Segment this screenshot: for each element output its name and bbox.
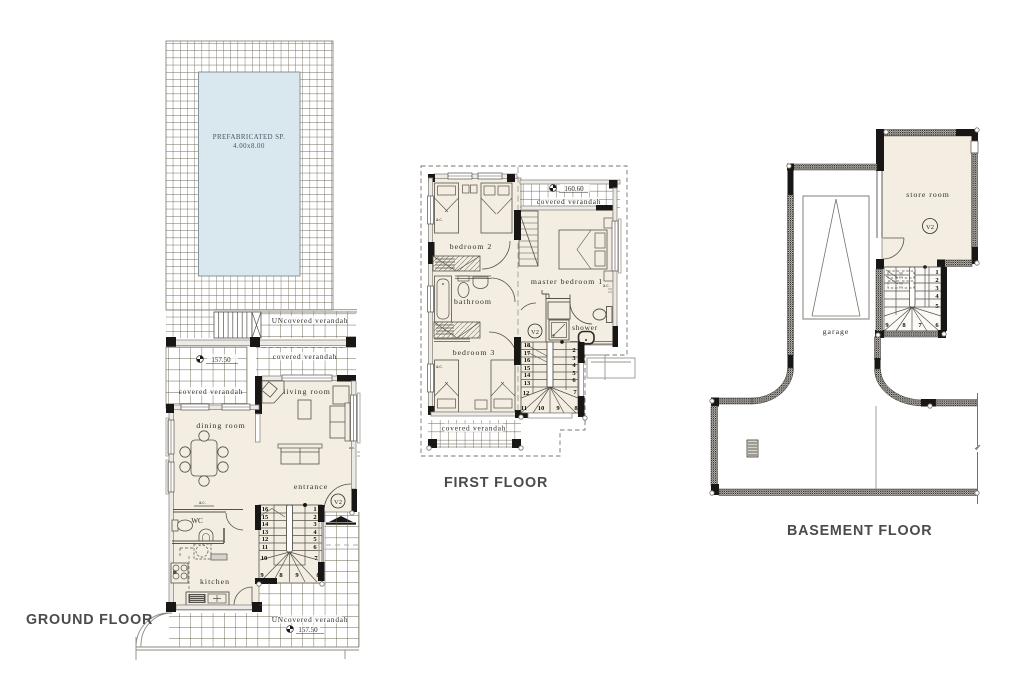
svg-text:WC: WC: [191, 517, 203, 525]
svg-text:15: 15: [262, 514, 269, 521]
svg-text:11: 11: [262, 544, 268, 551]
svg-text:GROUND FLOOR: GROUND FLOOR: [26, 612, 153, 628]
svg-text:master bedroom 1: master bedroom 1: [531, 277, 603, 286]
svg-text:157.50: 157.50: [298, 626, 318, 634]
svg-text:covered verandah: covered verandah: [179, 387, 243, 396]
svg-text:covered verandah: covered verandah: [537, 197, 601, 206]
svg-text:V2: V2: [334, 499, 342, 506]
svg-text:covered verandah: covered verandah: [273, 352, 337, 361]
svg-text:16: 16: [524, 357, 531, 364]
svg-text:17: 17: [524, 350, 531, 357]
svg-text:kitchen: kitchen: [200, 577, 230, 586]
svg-text:covered verandah: covered verandah: [442, 424, 506, 433]
svg-text:11: 11: [521, 405, 527, 412]
svg-text:FIRST FLOOR: FIRST FLOOR: [444, 475, 548, 491]
svg-text:PREFABRICATED SP.: PREFABRICATED SP.: [213, 134, 286, 141]
svg-text:12: 12: [262, 536, 269, 543]
svg-text:a.c.: a.c.: [603, 284, 610, 289]
svg-text:V2: V2: [926, 224, 934, 231]
svg-text:18: 18: [524, 342, 531, 349]
svg-text:16: 16: [262, 506, 269, 513]
svg-text:a.c.: a.c.: [436, 365, 443, 370]
svg-text:garage: garage: [823, 327, 850, 336]
svg-text:a.c.: a.c.: [436, 218, 443, 223]
svg-text:14: 14: [524, 372, 531, 379]
svg-text:10: 10: [538, 405, 545, 412]
svg-text:1: 1: [935, 269, 938, 276]
svg-text:store room: store room: [906, 190, 950, 199]
svg-text:UNcovered verandah: UNcovered verandah: [272, 615, 349, 624]
svg-text:bedroom 2: bedroom 2: [450, 242, 493, 251]
svg-text:160.60: 160.60: [564, 185, 584, 193]
svg-text:BASEMENT FLOOR: BASEMENT FLOOR: [787, 523, 932, 539]
svg-text:UNcovered verandah: UNcovered verandah: [272, 316, 349, 325]
svg-text:V2: V2: [531, 329, 539, 336]
svg-text:157.50: 157.50: [211, 356, 231, 364]
svg-text:entrance: entrance: [294, 482, 328, 491]
svg-text:dining room: dining room: [196, 421, 245, 430]
svg-text:bedroom 3: bedroom 3: [453, 348, 496, 357]
svg-text:12: 12: [523, 390, 530, 397]
svg-text:a.c.: a.c.: [199, 501, 206, 506]
svg-text:13: 13: [524, 380, 531, 387]
svg-text:1: 1: [313, 506, 316, 513]
svg-text:13: 13: [262, 529, 269, 536]
svg-text:10: 10: [261, 555, 268, 562]
svg-text:living room: living room: [283, 387, 331, 396]
svg-text:a.c.: a.c.: [349, 445, 355, 450]
svg-text:4.00x8.00: 4.00x8.00: [233, 143, 265, 150]
svg-text:bathroom: bathroom: [454, 297, 492, 306]
svg-text:14: 14: [262, 521, 269, 528]
svg-text:shower: shower: [572, 323, 598, 332]
svg-text:15: 15: [524, 365, 531, 372]
